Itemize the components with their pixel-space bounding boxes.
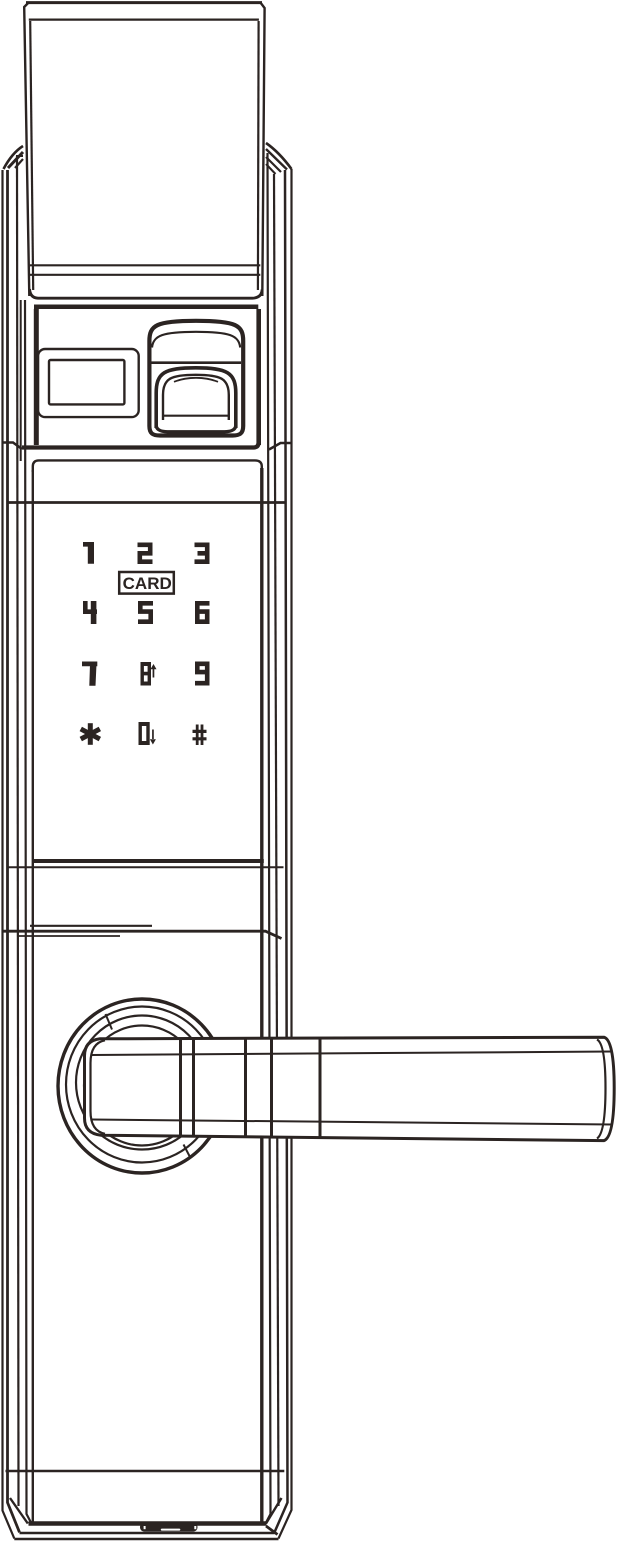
svg-text:CARD: CARD	[123, 574, 172, 593]
